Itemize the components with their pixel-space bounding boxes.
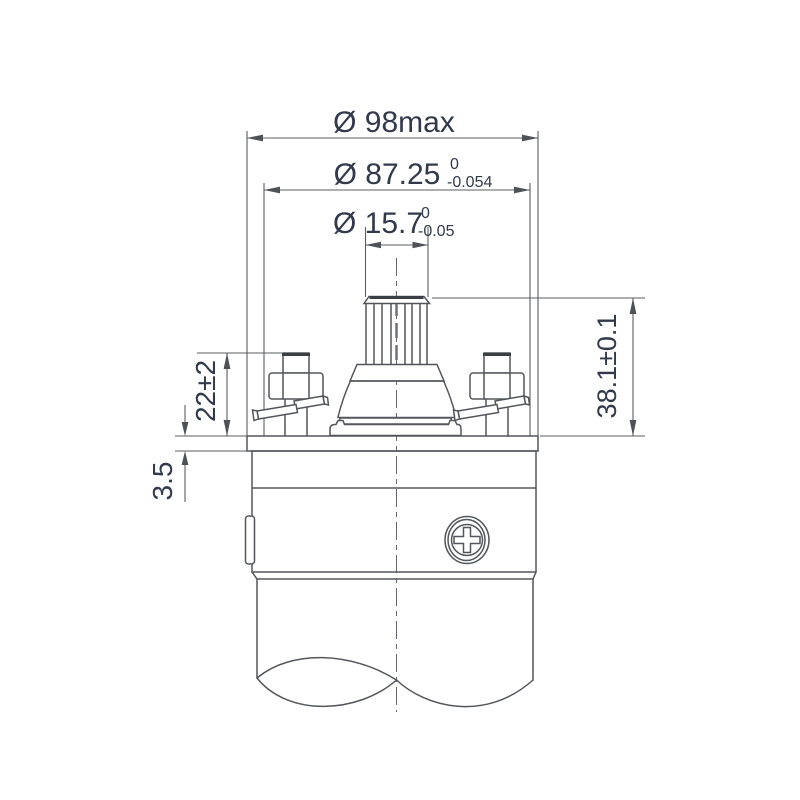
dim-shaft-diameter: Ø 15.7 0 -0.05 xyxy=(333,205,455,297)
side-tab xyxy=(246,516,255,564)
terminal-height-label: 22±2 xyxy=(190,360,221,422)
dim-terminal-height: 22±2 xyxy=(190,353,282,436)
shaft-diameter-tol-lower: -0.05 xyxy=(418,223,455,240)
break-line xyxy=(257,658,533,707)
phillips-screw-icon xyxy=(445,517,489,564)
flange-diameter-tol-lower: -0.054 xyxy=(447,174,492,191)
technical-drawing-canvas: Ø 98max Ø 87.25 0 -0.054 Ø 15.7 0 -0.05 … xyxy=(0,0,800,800)
dimension-drawing: Ø 98max Ø 87.25 0 -0.054 Ø 15.7 0 -0.05 … xyxy=(0,0,800,800)
mounting-flange xyxy=(247,436,538,451)
flange-thickness-label: 3.5 xyxy=(147,462,178,501)
switch-body xyxy=(246,451,537,572)
flange-diameter-label: Ø 87.25 xyxy=(334,158,441,191)
shaft-height-label: 38.1±0.1 xyxy=(592,314,622,419)
shaft-diameter-tol-upper: 0 xyxy=(421,205,430,222)
terminal-bolt-right xyxy=(454,353,530,436)
cylinder-shell xyxy=(252,572,536,707)
flange-diameter-tol-upper: 0 xyxy=(450,156,459,173)
bell-housing xyxy=(330,365,461,436)
shaft-diameter-label: Ø 15.7 xyxy=(333,207,423,240)
outer-diameter-label: Ø 98max xyxy=(333,106,455,139)
